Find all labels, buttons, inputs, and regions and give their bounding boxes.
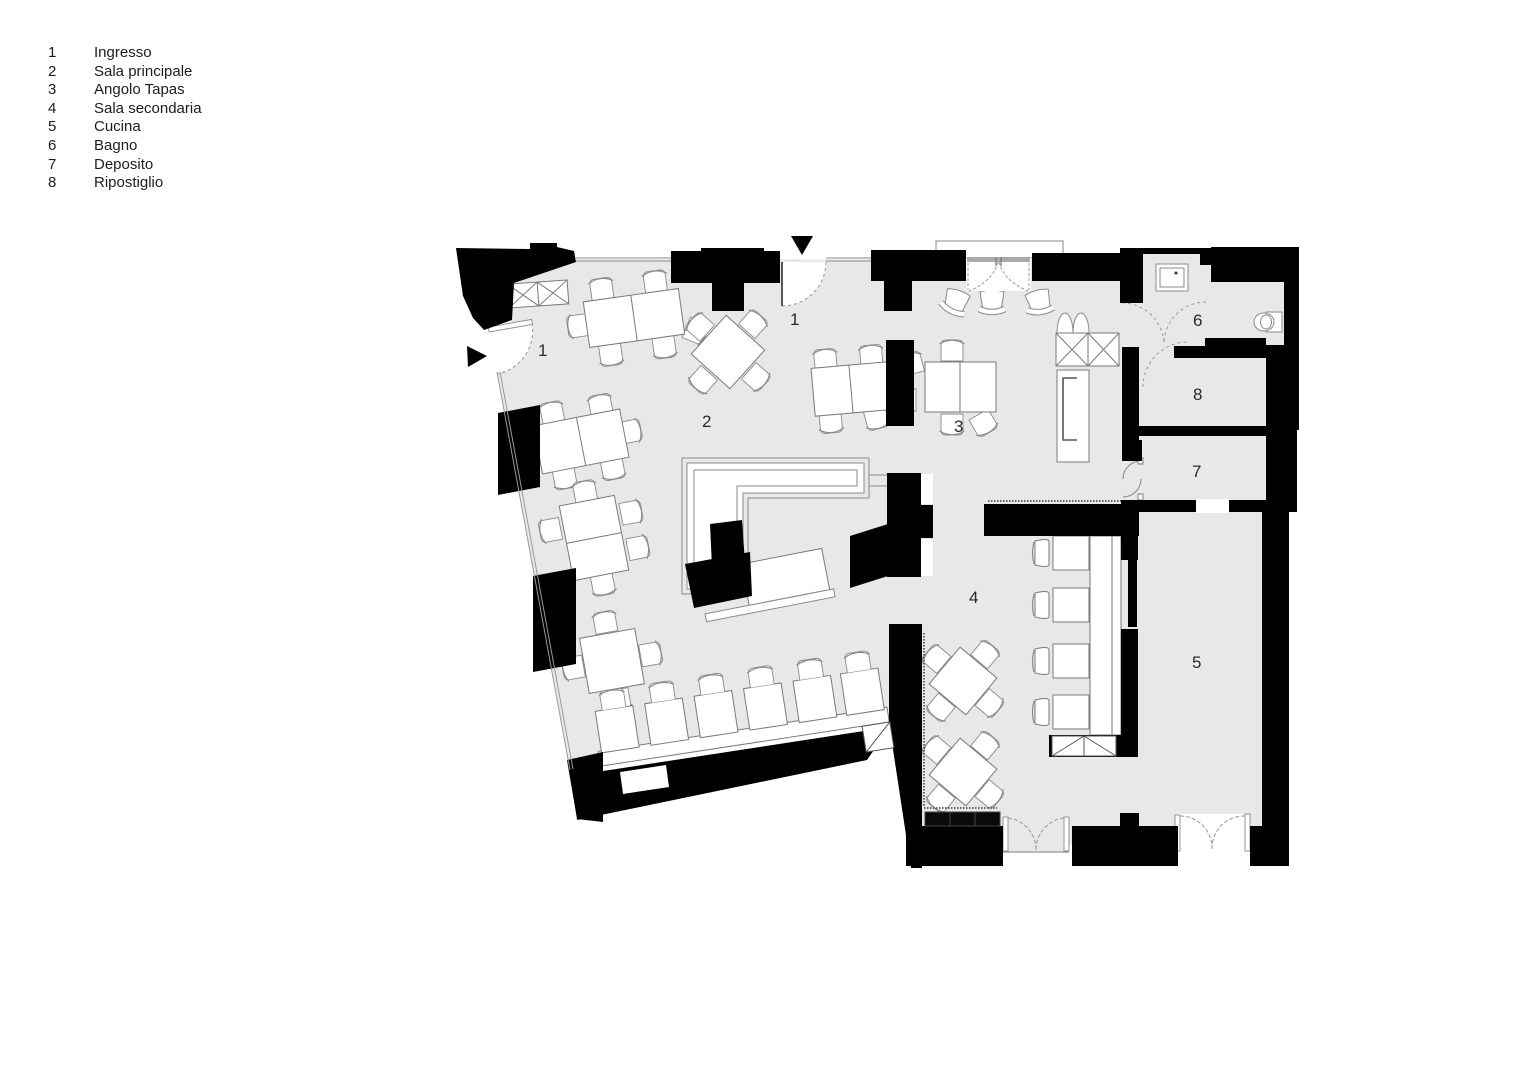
svg-text:3: 3 xyxy=(954,417,963,436)
svg-text:5: 5 xyxy=(1192,653,1201,672)
svg-text:6: 6 xyxy=(1193,311,1202,330)
svg-text:8: 8 xyxy=(1193,385,1202,404)
svg-text:4: 4 xyxy=(969,588,978,607)
svg-text:2: 2 xyxy=(702,412,711,431)
svg-text:1: 1 xyxy=(538,341,547,360)
svg-text:7: 7 xyxy=(1192,462,1201,481)
svg-text:1: 1 xyxy=(790,310,799,329)
